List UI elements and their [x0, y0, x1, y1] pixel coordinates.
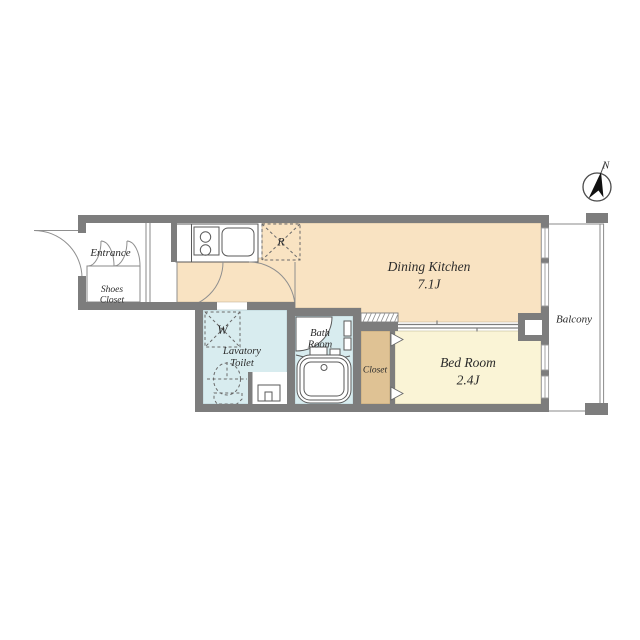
closet-label: Closet [363, 366, 388, 376]
compass-north-label: N [602, 161, 611, 172]
bathtub-icon [297, 355, 351, 403]
stove-icon [194, 227, 219, 255]
wall [541, 215, 549, 228]
entry-door-arc [34, 231, 82, 279]
bath-shelf [344, 321, 351, 336]
wall [195, 302, 203, 412]
bath-room-label: Bath [310, 328, 330, 339]
wall [541, 370, 549, 376]
balcony-label: Balcony [556, 314, 592, 326]
dining-kitchen-size: 7.1J [418, 277, 442, 292]
lavatory-toilet-label: Lavatory [222, 346, 261, 357]
wall [295, 308, 361, 316]
pillar [518, 313, 549, 341]
floor-plan: Entrance Shoes Closet Dining Kitchen 7.1… [0, 0, 640, 640]
shoes-closet-label: Shoes [101, 285, 123, 295]
wash-basin-icon [258, 385, 280, 401]
wall [78, 215, 549, 223]
bath-room-label: Room [307, 340, 333, 351]
wall [541, 398, 549, 412]
wall [541, 258, 549, 263]
hatched-opening [361, 313, 398, 322]
wall [78, 215, 86, 233]
kitchen-sink-icon [222, 228, 254, 256]
lavatory-toilet-label: Toilet [230, 358, 255, 369]
kitchen-counter [176, 224, 258, 262]
wall [287, 302, 295, 404]
floor-plan-drawing: Entrance Shoes Closet Dining Kitchen 7.1… [0, 0, 640, 640]
shoes-closet-label: Closet [100, 296, 125, 306]
wall [353, 322, 398, 331]
bath-shelf [344, 338, 351, 350]
bed-room-size: 2.4J [457, 373, 481, 388]
entrance-label: Entrance [89, 247, 130, 259]
dining-kitchen-label: Dining Kitchen [387, 259, 471, 274]
wall [195, 404, 549, 412]
wall [171, 223, 177, 262]
wall [248, 372, 253, 404]
refrigerator-label: R [276, 237, 284, 249]
washer-label: W [217, 323, 229, 337]
bed-room-label: Bed Room [440, 355, 496, 370]
